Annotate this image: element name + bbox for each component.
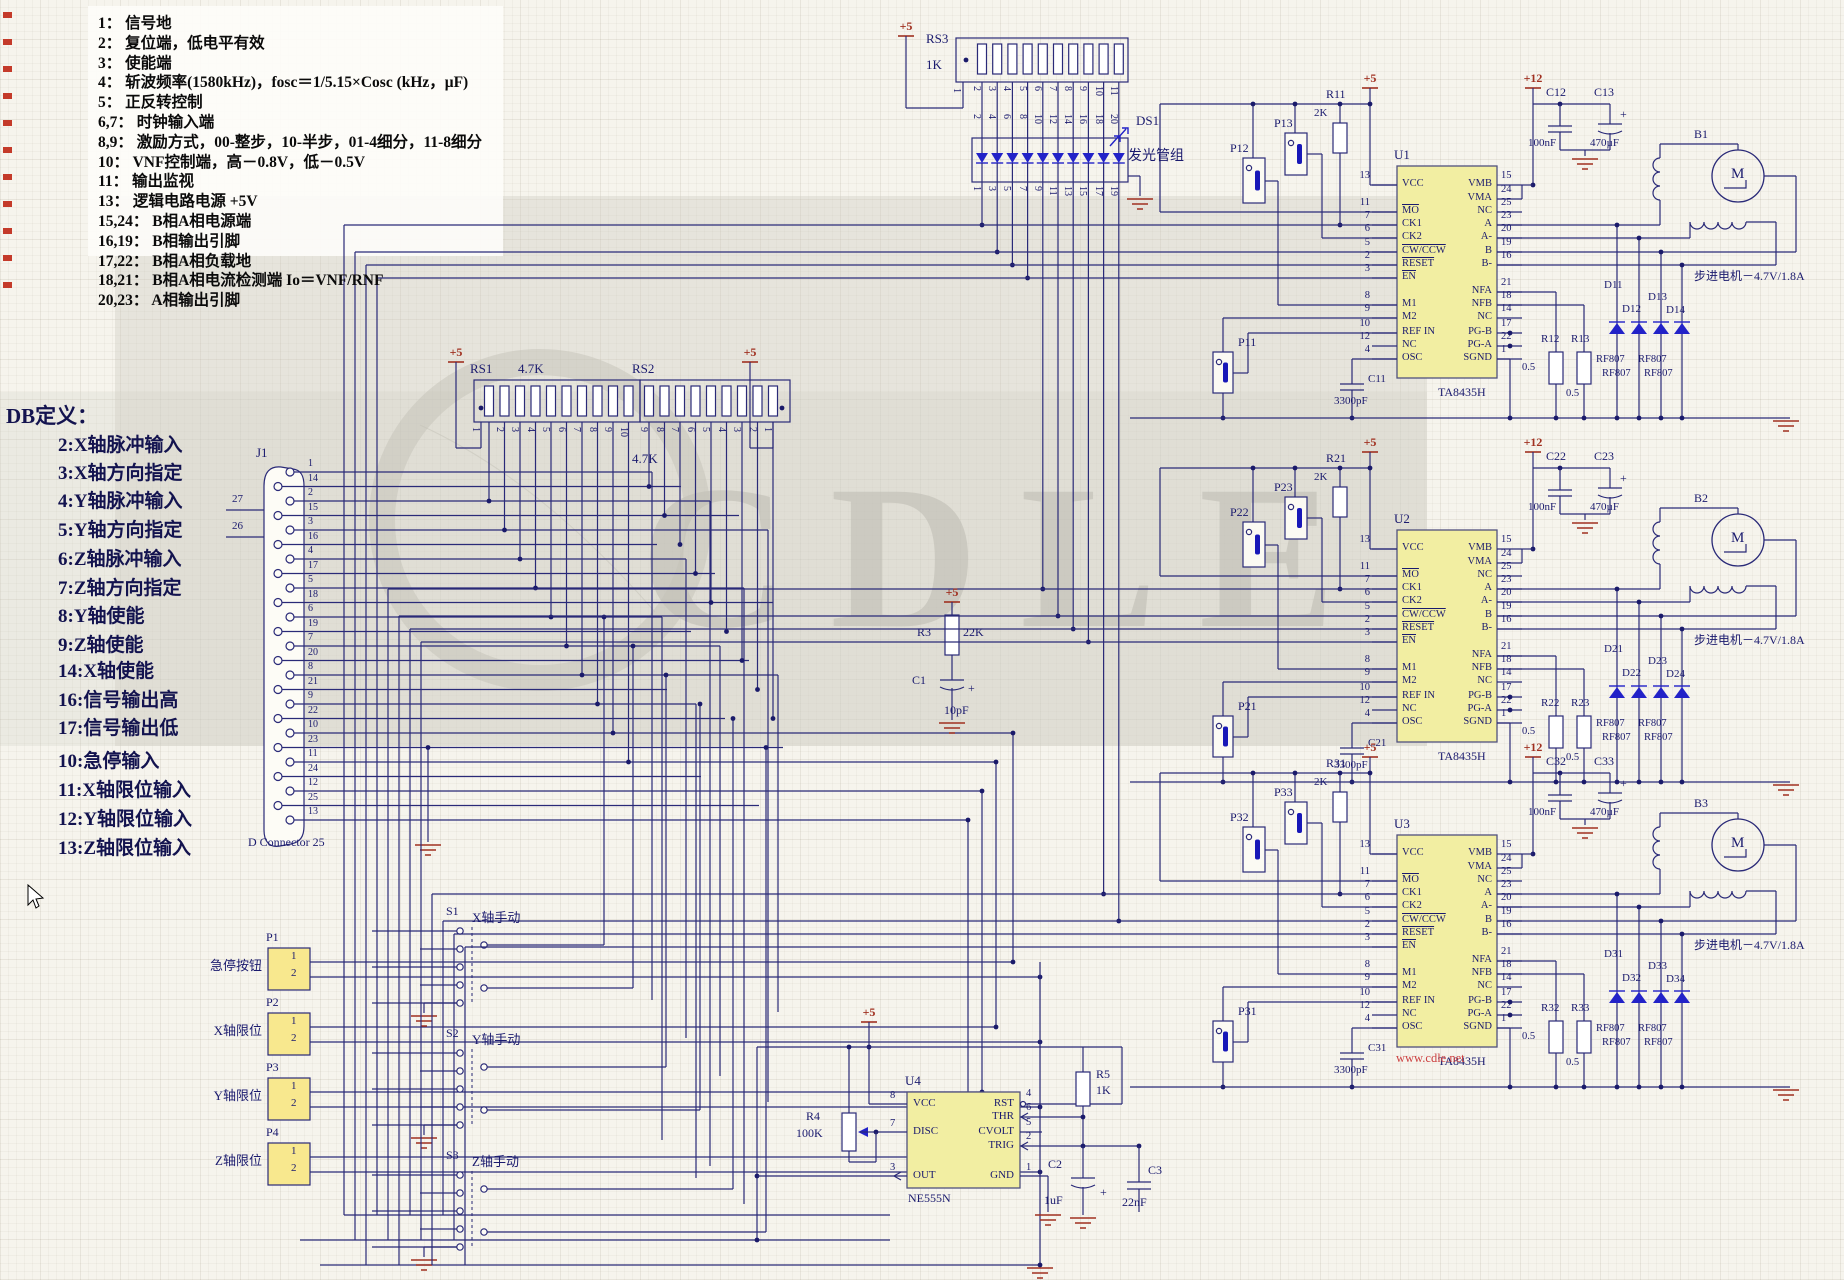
junction-dot xyxy=(1338,102,1343,107)
db25-pin xyxy=(274,773,282,781)
pin-number: 18 xyxy=(1501,654,1512,665)
pin-name: NFB xyxy=(1430,298,1492,309)
pin-name: CK1 xyxy=(1402,218,1422,229)
part-ref: R4 xyxy=(806,1110,820,1123)
junction-dot xyxy=(1659,614,1664,619)
ground-icon xyxy=(1773,421,1799,431)
pin-number: 22 xyxy=(1501,331,1512,342)
part-ref: C32 xyxy=(1546,755,1566,768)
part-value: 0.5 xyxy=(1522,726,1535,737)
part-value: 2K xyxy=(1314,777,1327,789)
resistor-body xyxy=(691,386,700,416)
junction-dot xyxy=(1615,587,1620,592)
junction-dot xyxy=(966,818,971,823)
resistor-body xyxy=(738,386,747,416)
red-tick xyxy=(3,282,12,288)
resistor-body xyxy=(1577,352,1591,384)
pin-name: M2 xyxy=(1402,311,1417,322)
pin-number: 8 xyxy=(1346,654,1370,665)
junction-dot xyxy=(1680,263,1685,268)
pin-number: 5 xyxy=(1016,86,1027,91)
ground-icon xyxy=(411,1138,437,1148)
jumper-blob xyxy=(1297,144,1302,164)
coil xyxy=(1653,827,1660,869)
pin-number: 18 xyxy=(1501,959,1512,970)
junction-dot xyxy=(662,513,667,518)
pin-number: 9 xyxy=(1346,667,1370,678)
switch-contact xyxy=(457,1244,463,1250)
resistor-body xyxy=(1549,352,1563,384)
junction-dot xyxy=(1637,416,1642,421)
pin-name: OUT xyxy=(913,1170,936,1182)
site-watermark: www.cdle.net xyxy=(1396,1052,1465,1065)
pin-number: 18 xyxy=(1501,290,1512,301)
red-tick xyxy=(3,120,12,126)
chip-part: NE555N xyxy=(908,1192,951,1205)
pin-number: 11 xyxy=(1346,561,1370,572)
pin-number: 2 xyxy=(291,1163,297,1175)
pin-name: NFA xyxy=(1430,285,1492,296)
ground-icon xyxy=(939,723,965,733)
diode-part: RF807 xyxy=(1638,354,1667,365)
pin-name: VMA xyxy=(1430,192,1492,203)
coil xyxy=(1690,891,1746,898)
pin-name: PG-A xyxy=(1430,339,1492,350)
pin-number: 1 xyxy=(470,427,481,432)
jumper-blob xyxy=(1223,727,1228,747)
part-value: 4.7K xyxy=(518,362,544,376)
junction-dot xyxy=(755,687,760,692)
pin-number: 15 xyxy=(308,503,318,514)
junction-dot xyxy=(1508,416,1513,421)
db-item: 8:Y轴使能 xyxy=(58,607,145,627)
pin-name: NC xyxy=(1430,205,1492,216)
pin-number: 21 xyxy=(308,677,318,688)
part-ref: R13 xyxy=(1571,334,1589,346)
pin-number: 15 xyxy=(1501,170,1512,181)
note-line: 6,7： 时钟输入端 xyxy=(98,115,214,131)
resistor-body xyxy=(660,386,669,416)
pin-number: 2 xyxy=(1346,614,1370,625)
jumper-ref: P32 xyxy=(1230,811,1249,824)
part-value: 1K xyxy=(1096,1084,1111,1097)
db25-pin xyxy=(274,483,282,491)
pin-number: 9 xyxy=(638,427,649,432)
pin-number: 4 xyxy=(524,427,535,432)
pin-name: SGND xyxy=(1430,716,1492,727)
resistor-body xyxy=(624,386,633,416)
diode-part: RF807 xyxy=(1596,354,1625,365)
part-value: 470µF xyxy=(1590,502,1619,514)
jumper-body xyxy=(1285,497,1307,539)
part-ref: C3 xyxy=(1148,1164,1162,1177)
pin-number: 8 xyxy=(1062,86,1073,91)
pin-name: M1 xyxy=(1402,662,1417,673)
resistor-body xyxy=(1549,716,1563,748)
switch-caption: Z轴手动 xyxy=(472,1155,519,1169)
motor-caption: 步进电机－4.7V/1.8A xyxy=(1694,939,1805,952)
pin-number: 6 xyxy=(1346,892,1370,903)
db25-pin xyxy=(274,657,282,665)
pin-number: 17 xyxy=(1501,318,1512,329)
db-item: 2:X轴脉冲输入 xyxy=(58,436,183,456)
pin-number: 21 xyxy=(1501,277,1512,288)
pin-name: OSC xyxy=(1402,1021,1422,1032)
motor-ref: B2 xyxy=(1694,492,1708,505)
pin-number: 7 xyxy=(1016,186,1027,191)
pin-name: NC xyxy=(1430,311,1492,322)
pin-name: NC xyxy=(1402,703,1417,714)
pot-body xyxy=(842,1113,856,1151)
part-ref: C11 xyxy=(1368,374,1386,386)
pin-number: 16 xyxy=(1501,919,1512,930)
pin-name: CVOLT xyxy=(952,1126,1014,1138)
power-label: +5 xyxy=(853,1006,885,1019)
inverter-bubble xyxy=(1021,1102,1026,1107)
pin-number: 10 xyxy=(1346,318,1370,329)
pin-number: 10 xyxy=(617,427,628,437)
red-tick xyxy=(3,39,12,45)
pin-name: B xyxy=(1430,609,1492,620)
pin-number: 16 xyxy=(1077,114,1088,124)
pin-number: 25 xyxy=(1501,866,1512,877)
switch-contact xyxy=(481,985,487,991)
junction-dot xyxy=(1615,780,1620,785)
junction-dot xyxy=(1554,780,1559,785)
diode-part: RF807 xyxy=(1644,732,1673,743)
pin-number: 12 xyxy=(1047,114,1058,124)
db25-pin xyxy=(286,613,294,621)
db-title: DB定义： xyxy=(6,405,98,427)
pin-number: 6 xyxy=(1001,114,1012,119)
coil xyxy=(1653,522,1660,564)
pin-number: 1 xyxy=(1501,1013,1506,1024)
pin-number: 15 xyxy=(1501,839,1512,850)
junction-dot xyxy=(994,760,999,765)
jumper-body xyxy=(1243,827,1265,872)
junction-dot xyxy=(1659,250,1664,255)
pin-number: 14 xyxy=(1501,972,1512,983)
jumper-pin xyxy=(1288,140,1293,145)
jumper-pin xyxy=(1246,165,1251,170)
switch-contact xyxy=(457,1190,463,1196)
junction-dot xyxy=(1582,416,1587,421)
pin-number: 9 xyxy=(1077,86,1088,91)
switch-ref: S3 xyxy=(446,1149,459,1162)
jumper-body xyxy=(1285,133,1307,175)
pin-number: 5 xyxy=(1001,186,1012,191)
led-icon xyxy=(1082,153,1094,163)
pin-name: CK1 xyxy=(1402,582,1422,593)
diode-ref: D13 xyxy=(1648,292,1667,304)
note-line: 2： 复位端，低电平有效 xyxy=(98,36,265,52)
pin-number: 22 xyxy=(1501,1000,1512,1011)
led-icon xyxy=(1113,153,1125,163)
jumper-body xyxy=(1243,522,1265,567)
pin-number: 14 xyxy=(308,474,318,485)
db25-pin xyxy=(274,628,282,636)
pin-number: 20 xyxy=(1501,587,1512,598)
db25-shell xyxy=(264,467,304,846)
pin-name: A- xyxy=(1430,595,1492,606)
junction-dot xyxy=(1338,466,1343,471)
note-line: 15,24： B相A相电源端 xyxy=(98,214,251,230)
diode-ref: D12 xyxy=(1622,304,1641,316)
jumper-blob xyxy=(1255,535,1260,555)
pin-name: B- xyxy=(1430,622,1492,633)
power-label: +12 xyxy=(1517,436,1549,449)
pin-number: 2 xyxy=(308,488,313,499)
resistor-body xyxy=(1054,44,1063,74)
jumper-blob xyxy=(1255,171,1260,191)
pin-number: 23 xyxy=(1501,574,1512,585)
note-line: 10： VNF控制端，高－0.8V，低－0.5V xyxy=(98,155,365,171)
diode-icon xyxy=(1609,323,1625,334)
resistor-body xyxy=(1333,792,1347,822)
pin-number: 7 xyxy=(1346,210,1370,221)
pin-number: 8 xyxy=(1346,959,1370,970)
junction-dot xyxy=(678,542,683,547)
resistor-body xyxy=(1333,487,1347,517)
part-value: 22nF xyxy=(1122,1196,1147,1209)
connector-ref: P2 xyxy=(266,996,279,1009)
junction-dot xyxy=(780,406,785,411)
connector-ref: P4 xyxy=(266,1126,279,1139)
resistor-body xyxy=(516,386,525,416)
pin-number: 11 xyxy=(1346,197,1370,208)
junction-dot xyxy=(964,58,969,63)
diode-part: RF807 xyxy=(1638,718,1667,729)
pin-name: TRIG xyxy=(952,1140,1014,1152)
pin-number: 10 xyxy=(1092,86,1103,96)
jumper-ref: P13 xyxy=(1274,117,1293,130)
motor-ref: B1 xyxy=(1694,128,1708,141)
part-ref: R12 xyxy=(1541,334,1559,346)
pin-name: CK2 xyxy=(1402,595,1422,606)
pin-number: 10 xyxy=(1031,114,1042,124)
junction-dot xyxy=(1368,771,1373,776)
part-value: 1uF xyxy=(1044,1194,1063,1207)
pin-name: NFA xyxy=(1430,954,1492,965)
pin-number: 21 xyxy=(1501,946,1512,957)
pin-number: 11 xyxy=(1346,866,1370,877)
pin-number: 3 xyxy=(308,517,313,528)
junction-dot xyxy=(1508,344,1513,349)
pin-number: 2 xyxy=(971,114,982,119)
jumper-pin xyxy=(1216,1028,1221,1033)
part-value: 0.5 xyxy=(1522,1031,1535,1042)
pin-number: 9 xyxy=(1346,972,1370,983)
pin-number: 19 xyxy=(1501,906,1512,917)
junction-dot xyxy=(698,702,703,707)
switch-contact xyxy=(481,1229,487,1235)
led-icon xyxy=(1067,153,1079,163)
pin-name: NC xyxy=(1430,675,1492,686)
motor-caption: 步进电机－4.7V/1.8A xyxy=(1694,270,1805,283)
resistor-body xyxy=(645,386,654,416)
part-value: 0.5 xyxy=(1566,1057,1579,1068)
diode-icon xyxy=(1631,687,1647,698)
junction-dot xyxy=(1680,416,1685,421)
resistor-body xyxy=(593,386,602,416)
pin-number: 13 xyxy=(308,807,318,818)
switch-contact xyxy=(457,964,463,970)
resistor-body xyxy=(1333,123,1347,153)
junction-dot xyxy=(1508,1085,1513,1090)
ground-icon xyxy=(415,845,441,855)
pin-name: VMB xyxy=(1430,847,1492,858)
pin-number: 17 xyxy=(308,561,318,572)
mouse-cursor xyxy=(28,885,43,908)
junction-dot xyxy=(755,1238,760,1243)
pin-number: 7 xyxy=(1346,574,1370,585)
db-item: 7:Z轴方向指定 xyxy=(58,579,182,599)
db-item: 13:Z轴限位输入 xyxy=(58,839,191,859)
diode-part: RF807 xyxy=(1644,1037,1673,1048)
pin-name: DISC xyxy=(913,1126,938,1138)
part-ref: R11 xyxy=(1326,88,1346,101)
pin-name: A xyxy=(1430,887,1492,898)
ground-icon xyxy=(1127,199,1153,209)
pin-number: 27 xyxy=(232,494,243,506)
pin-number: 10 xyxy=(1346,682,1370,693)
junction-dot xyxy=(564,644,569,649)
pin-number: 6 xyxy=(308,604,313,615)
db25-pin xyxy=(274,686,282,694)
diode-ref: D22 xyxy=(1622,668,1641,680)
switch-contact xyxy=(457,946,463,952)
pin-number: 24 xyxy=(308,764,318,775)
coil xyxy=(1690,222,1746,229)
chip-ref: U3 xyxy=(1394,817,1410,831)
junction-dot xyxy=(1659,1085,1664,1090)
pin-name: NFA xyxy=(1430,649,1492,660)
part-ref: C22 xyxy=(1546,450,1566,463)
pin-number: 1 xyxy=(762,427,773,432)
pin-number: 8 xyxy=(1346,290,1370,301)
switch-ref: S1 xyxy=(446,905,459,918)
part-ref: R31 xyxy=(1326,757,1346,770)
diode-ref: D11 xyxy=(1604,280,1623,292)
junction-dot xyxy=(487,499,492,504)
plus-mark: + xyxy=(968,682,975,695)
pin-number: 1 xyxy=(951,88,962,93)
diode-icon xyxy=(1674,687,1690,698)
ground-icon xyxy=(1572,159,1598,169)
jumper-ref: P11 xyxy=(1238,336,1256,349)
junction-dot xyxy=(479,406,484,411)
part-ref: C2 xyxy=(1048,1158,1062,1171)
note-line: 11： 输出监视 xyxy=(98,174,194,190)
part-value: 4.7K xyxy=(632,452,658,466)
db25-pin xyxy=(274,715,282,723)
plus-mark: + xyxy=(1620,472,1627,485)
connector-body xyxy=(268,1143,310,1185)
note-line: 13： 逻辑电路电源 +5V xyxy=(98,194,258,210)
note-line: 8,9： 激励方式，00-整步，10-半步，01-4细分，11-8细分 xyxy=(98,135,482,151)
pin-number: 3 xyxy=(1346,627,1370,638)
note-line: 20,23： A相输出引脚 xyxy=(98,293,240,309)
pin-number: 23 xyxy=(1501,210,1512,221)
pin-number: 11 xyxy=(308,749,318,760)
part-value: 100K xyxy=(796,1127,823,1140)
jumper-blob xyxy=(1297,813,1302,833)
pin-name: EN xyxy=(1402,635,1416,646)
pin-number: 21 xyxy=(1501,641,1512,652)
pin-number: 13 xyxy=(1062,186,1073,196)
part-value: 22K xyxy=(963,626,984,639)
junction-dot xyxy=(502,528,507,533)
led-icon xyxy=(1022,153,1034,163)
junction-dot xyxy=(1680,780,1685,785)
junction-dot xyxy=(980,789,985,794)
power-label: +5 xyxy=(1354,741,1386,754)
pin-name: MO xyxy=(1402,874,1419,885)
pin-number: 6 xyxy=(555,427,566,432)
pin-number: 15 xyxy=(1077,186,1088,196)
pin-number: 3 xyxy=(986,86,997,91)
db25-pin xyxy=(274,541,282,549)
diode-part: RF807 xyxy=(1596,1023,1625,1034)
part-ref: RS2 xyxy=(632,362,654,376)
diode-part: RF807 xyxy=(1596,718,1625,729)
led-icon xyxy=(1006,153,1018,163)
switch-caption: X轴手动 xyxy=(472,911,520,925)
pin-number: 6 xyxy=(1026,1102,1031,1113)
pin-number: 5 xyxy=(1346,906,1370,917)
junction-dot xyxy=(1659,780,1664,785)
pin-number: 6 xyxy=(684,427,695,432)
pin-name: B xyxy=(1430,914,1492,925)
power-label: +5 xyxy=(936,586,968,599)
jumper-ref: P31 xyxy=(1238,1005,1257,1018)
diode-part: RF807 xyxy=(1638,1023,1667,1034)
pin-number: 24 xyxy=(1501,853,1512,864)
resistor-body xyxy=(707,386,716,416)
chip-ref: U1 xyxy=(1394,148,1410,162)
ground-icon xyxy=(1773,1090,1799,1100)
pin-name: A xyxy=(1430,218,1492,229)
pin-number: 8 xyxy=(890,1090,895,1101)
red-tick xyxy=(3,174,12,180)
pin-number: 2 xyxy=(1026,1131,1031,1142)
pin-number: 5 xyxy=(308,575,313,586)
led-icon xyxy=(1052,153,1064,163)
part-caption: 发光管组 xyxy=(1128,150,1184,165)
pin-number: 4 xyxy=(1346,1013,1370,1024)
db25-pin xyxy=(286,584,294,592)
resistor-body xyxy=(1023,44,1032,74)
pin-name: VCC xyxy=(1402,178,1424,189)
db-item: 12:Y轴限位输入 xyxy=(58,810,192,830)
pin-number: 7 xyxy=(669,427,680,432)
junction-dot xyxy=(1293,466,1298,471)
chip-part: TA8435H xyxy=(1438,750,1486,763)
pin-number: 8 xyxy=(586,427,597,432)
resistor-body xyxy=(993,44,1002,74)
junction-dot xyxy=(994,1025,999,1030)
motor-symbol: M xyxy=(1731,167,1744,183)
pin-number: 2 xyxy=(291,1098,297,1110)
junction-dot xyxy=(602,615,607,620)
power-label: +12 xyxy=(1517,72,1549,85)
part-ref: R22 xyxy=(1541,698,1559,710)
watermark-swoosh xyxy=(420,425,655,612)
note-line: 4： 斩波频率(1580kHz)，fosc＝1/5.15×Cosc (kHz，μ… xyxy=(98,75,468,91)
db-item: 11:X轴限位输入 xyxy=(58,781,191,801)
pin-number: 3 xyxy=(986,186,997,191)
switch-contact xyxy=(457,1208,463,1214)
